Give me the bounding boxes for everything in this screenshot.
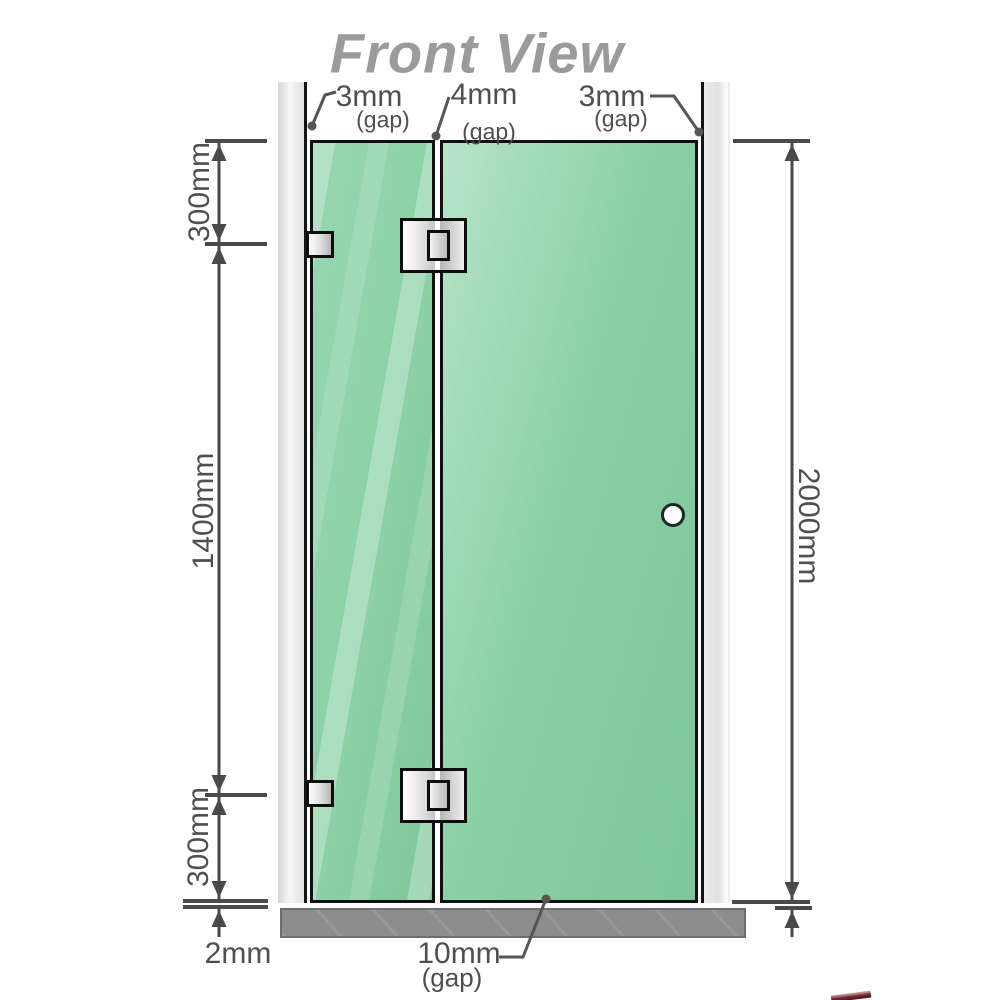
glass-panel-door [440,140,698,903]
leader-gap-right [650,96,699,132]
arrowhead-up [212,910,227,927]
gap-middle-value: 4mm [451,78,518,112]
hinge-knuckle [427,780,450,811]
dimension-300-bottom: 300mm [182,787,216,887]
arrowhead-up [785,144,800,161]
hinge-knuckle [427,230,450,261]
gap-right-label: (gap) [594,106,648,133]
gap-bottom-label: (gap) [422,963,483,994]
floor-base [280,908,746,938]
wall-bracket-top [306,231,334,258]
arrowhead-up [785,911,800,928]
leader-gap-middle [436,97,449,136]
dimension-1400: 1400mm [187,453,221,570]
wall-right [701,82,730,903]
gap-middle-label: (gap) [462,119,516,146]
ribbon-corner [831,991,872,1000]
arrowhead-down [785,882,800,899]
hinge-top [400,218,467,273]
page-title: Front View [330,21,624,86]
leader-gap-left [312,92,336,126]
dimension-300-top: 300mm [183,142,217,242]
door-knob [661,503,685,527]
leader-dot [308,122,317,131]
wall-left [278,82,307,903]
arrowhead-up [212,247,227,264]
wall-bracket-bottom [306,780,334,807]
front-view-diagram: Front View 3mm (gap) 4mm (gap) 3mm (gap)… [0,0,1000,1000]
gap-left-label: (gap) [356,107,410,134]
dimension-2000-total: 2000mm [791,468,825,585]
hinge-bottom [400,768,467,823]
gap-floor-value: 2mm [205,937,272,971]
